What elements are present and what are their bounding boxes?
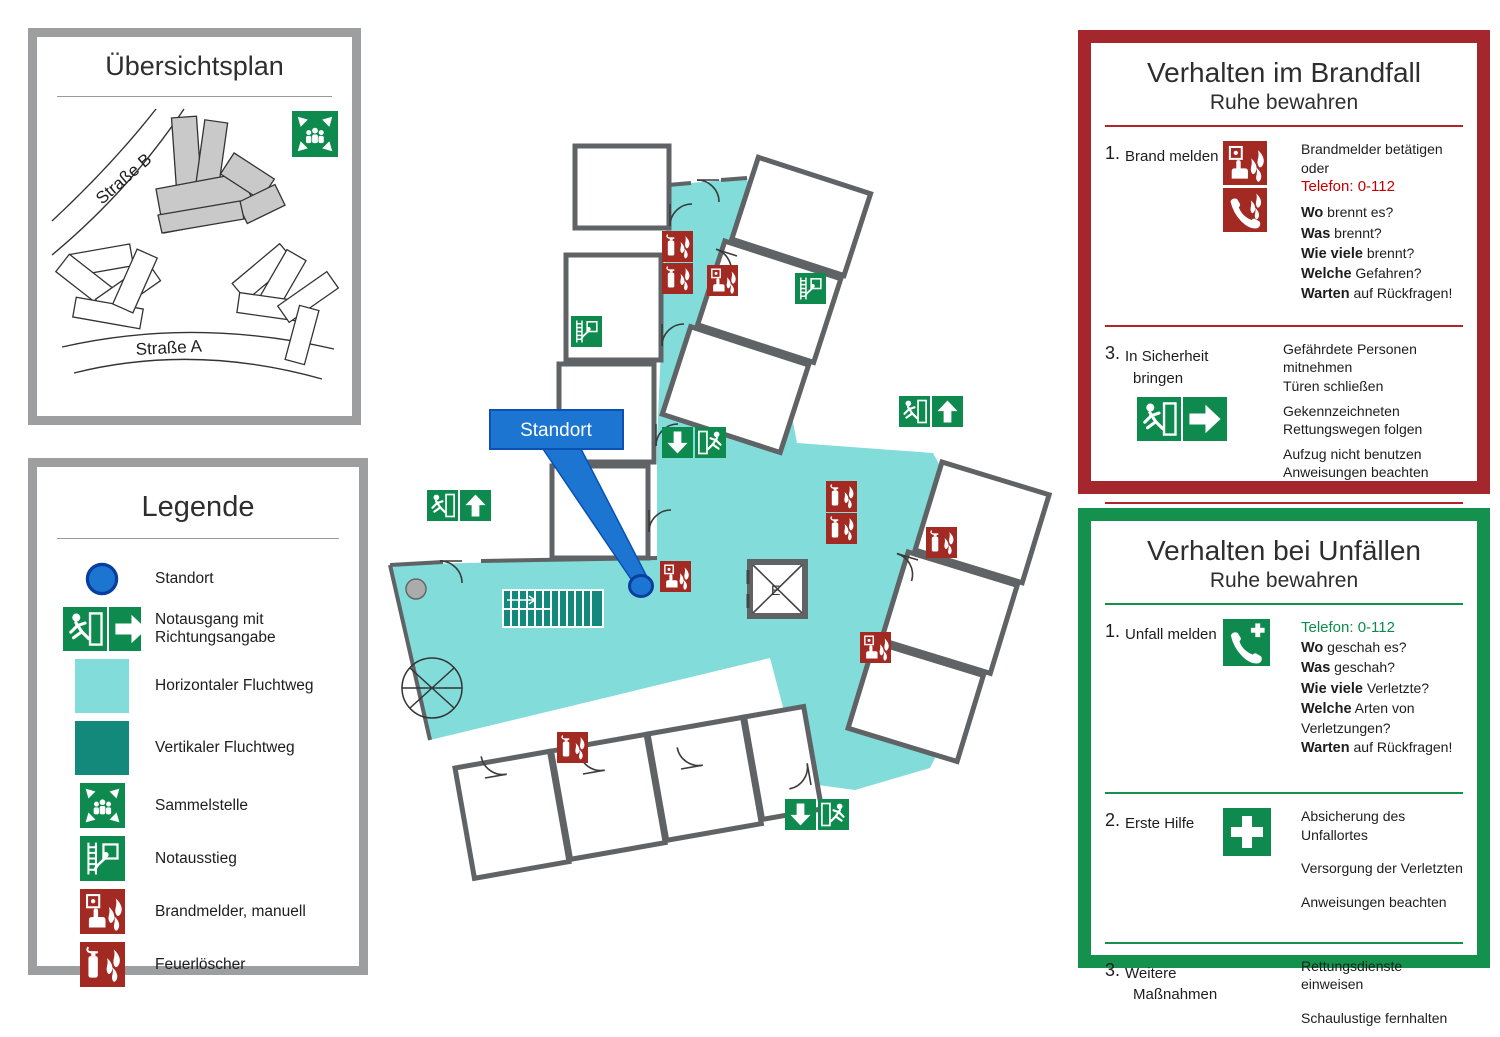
manual-fire-alarm-icon (1223, 141, 1267, 185)
site-map: Straße B Straße A (44, 103, 345, 386)
location-dot-icon (630, 576, 653, 597)
fire-extinguisher-icon (826, 481, 857, 512)
compass-circle (402, 658, 462, 718)
exit-running-man-icon (818, 799, 849, 830)
street-a-label: Straße A (135, 337, 203, 359)
fire-extinguisher-icon (826, 513, 857, 544)
emergency-ladder-icon (571, 316, 602, 347)
fire-extinguisher-icon (662, 231, 693, 262)
accident-panel: Verhalten bei Unfällen Ruhe bewahren 1. … (1078, 508, 1490, 968)
legend-row-assembly: Sammelstelle (63, 779, 359, 832)
elevator: E (748, 562, 805, 616)
manual-fire-alarm-icon (80, 889, 125, 934)
fire-section-safety: 3. In Sicherheit bringen Gefährdete Pers… (1091, 327, 1477, 492)
street-b-label: Straße B (92, 150, 155, 208)
fire-extinguisher-icon (557, 732, 588, 763)
building-cluster-left (56, 244, 161, 329)
manual-fire-alarm-icon (860, 632, 891, 663)
accident-subtitle: Ruhe bewahren (1091, 569, 1477, 593)
svg-text:E: E (771, 582, 780, 598)
stairs (503, 590, 603, 627)
svg-text:Standort: Standort (520, 420, 593, 441)
fire-extinguisher-icon (926, 527, 957, 558)
legend-row-alarm: Brandmelder, manuell (63, 885, 359, 938)
location-dot-icon (87, 565, 116, 594)
legend-title: Legende (37, 491, 359, 524)
fire-panel: Verhalten im Brandfall Ruhe bewahren 1. … (1078, 30, 1490, 494)
emergency-ladder-icon (80, 836, 125, 881)
fire-title: Verhalten im Brandfall (1091, 57, 1477, 89)
horizontal-escape-route-swatch (75, 659, 129, 713)
floor-plan: E Standort (385, 128, 1075, 978)
arrow-down-icon (662, 427, 693, 458)
emergency-ladder-icon (795, 273, 826, 304)
manual-fire-alarm-icon (660, 561, 691, 592)
accident-section-report: 1. Unfall melden Telefon: 0-112 Wo gesch… (1091, 605, 1477, 768)
arrow-right-icon (1183, 397, 1227, 441)
vertical-escape-route-swatch (75, 721, 129, 775)
fire-emergency-phone-icon (1223, 188, 1267, 232)
column-dot (406, 579, 426, 599)
building-current (156, 116, 285, 233)
first-aid-cross-icon (1223, 808, 1271, 856)
arrow-right-icon (109, 607, 141, 651)
legend-divider (57, 538, 339, 539)
legend-row-extinguisher: Feuerlöscher (63, 938, 359, 991)
fire-extinguisher-icon (80, 942, 125, 987)
legend-row-horizontal: Horizontaler Fluchtweg (63, 655, 359, 717)
legend-row-vertical: Vertikaler Fluchtweg (63, 717, 359, 779)
legend-row-ladder: Notausstieg (63, 832, 359, 885)
accident-title: Verhalten bei Unfällen (1091, 535, 1477, 567)
rooms-left (552, 146, 669, 558)
fire-section-report: 1. Brand melden Brandmelder betätigen od… (1091, 127, 1477, 315)
exit-running-man-icon (695, 427, 726, 458)
exit-running-man-icon (63, 607, 107, 651)
arrow-up-icon (460, 490, 491, 521)
fire-subtitle: Ruhe bewahren (1091, 91, 1477, 115)
exit-running-man-icon (899, 396, 930, 427)
overview-title: Übersichtsplan (37, 51, 352, 82)
legend-row-exit: Notausgang mit Richtungsangabe (63, 603, 359, 655)
exit-running-man-icon (427, 490, 458, 521)
overview-panel: Übersichtsplan Straße B (28, 28, 361, 425)
legend-panel: Legende Standort Notausgang mit Richtung… (28, 458, 368, 975)
manual-fire-alarm-icon (707, 265, 738, 296)
emergency-phone-icon (1223, 619, 1270, 666)
overview-divider (57, 96, 332, 97)
accident-section-further: 3. Weitere Maßnahmen Rettungsdienste ein… (1091, 944, 1477, 1037)
assembly-point-icon (292, 111, 338, 157)
arrow-down-icon (785, 799, 816, 830)
fire-extinguisher-icon (662, 263, 693, 294)
legend-row-standort: Standort (63, 555, 359, 603)
assembly-point-icon (80, 783, 125, 828)
accident-section-firstaid: 2. Erste Hilfe Absicherung des Unfallort… (1091, 794, 1477, 921)
rooms-bottom (455, 707, 823, 879)
exit-running-man-icon (1137, 397, 1181, 441)
arrow-up-icon (932, 396, 963, 427)
